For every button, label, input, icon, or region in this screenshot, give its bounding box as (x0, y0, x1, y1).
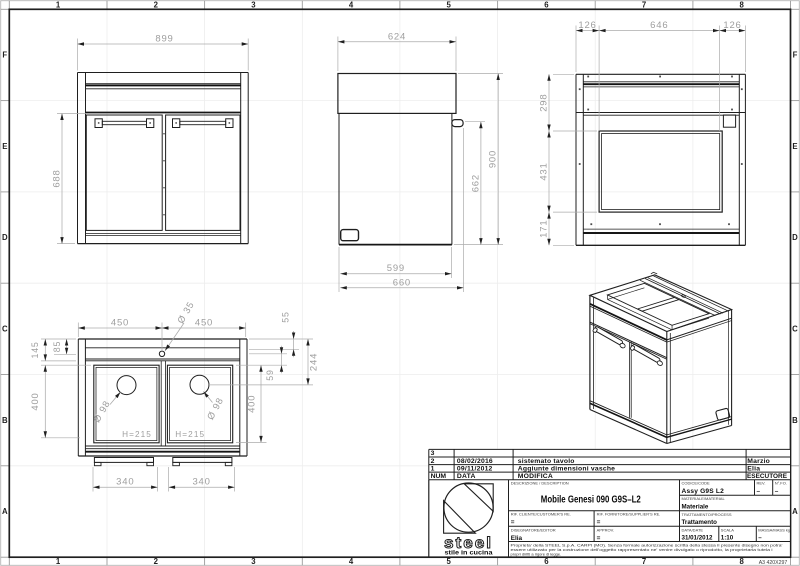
svg-text:H=215: H=215 (175, 430, 205, 439)
svg-text:2: 2 (154, 557, 159, 566)
svg-text:F: F (2, 50, 7, 59)
svg-text:propri diritti a rigore di leg: propri diritti a rigore di legge. (511, 552, 562, 557)
svg-text:400: 400 (30, 392, 41, 410)
svg-text:F: F (793, 50, 798, 59)
svg-text:Trattamento: Trattamento (682, 519, 718, 526)
svg-text:SCALA: SCALA (721, 527, 734, 532)
svg-text:A: A (2, 507, 8, 516)
svg-text:599: 599 (387, 263, 405, 274)
svg-text:646: 646 (650, 20, 668, 31)
svg-text:1:10: 1:10 (721, 535, 734, 542)
svg-text:RIF. CLIENTE/CUSTOMER'S RE.: RIF. CLIENTE/CUSTOMER'S RE. (511, 512, 571, 517)
svg-text:340: 340 (116, 477, 134, 488)
svg-text:340: 340 (192, 477, 210, 488)
svg-text:900: 900 (488, 150, 499, 168)
svg-text:4: 4 (349, 557, 354, 566)
svg-text:D: D (792, 233, 798, 242)
svg-text:C: C (792, 324, 798, 333)
svg-text:sistemato tavolo: sistemato tavolo (518, 458, 575, 465)
svg-text:=: = (597, 519, 601, 526)
svg-text:31/01/2012: 31/01/2012 (682, 535, 714, 542)
svg-text:6: 6 (544, 0, 549, 9)
svg-text:Elia: Elia (747, 465, 760, 472)
svg-text:59: 59 (265, 369, 275, 380)
svg-text:stile in cucina: stile in cucina (445, 550, 494, 557)
svg-text:08/02/2016: 08/02/2016 (457, 458, 493, 465)
svg-text:N°.FO.: N°.FO. (775, 481, 787, 486)
svg-text:E: E (792, 142, 797, 151)
svg-text:3: 3 (251, 0, 256, 9)
svg-text:688: 688 (52, 169, 63, 187)
svg-text:MATERIALE/MATERIAL: MATERIALE/MATERIAL (682, 496, 726, 501)
svg-text:DATA/DATE: DATA/DATE (682, 527, 704, 532)
svg-text:899: 899 (155, 34, 173, 45)
svg-text:431: 431 (539, 162, 550, 180)
svg-text:85: 85 (52, 341, 62, 352)
svg-text:RIF. FORNITORE/SUPPLIER'S RE.: RIF. FORNITORE/SUPPLIER'S RE. (597, 512, 661, 517)
svg-text:400: 400 (246, 395, 257, 413)
svg-text:=: = (511, 519, 515, 526)
svg-text:55: 55 (281, 311, 291, 322)
svg-text:3: 3 (431, 450, 435, 457)
svg-text:–: – (775, 488, 779, 495)
svg-text:450: 450 (111, 318, 129, 329)
svg-text:8: 8 (740, 557, 745, 566)
svg-text:Assy G9S L2: Assy G9S L2 (682, 488, 725, 495)
svg-text:624: 624 (388, 31, 406, 42)
svg-text:APPROV.: APPROV. (597, 527, 614, 532)
svg-text:450: 450 (195, 318, 213, 329)
svg-text:DESCRIZIONE / DESCRIPTION: DESCRIZIONE / DESCRIPTION (511, 481, 569, 486)
svg-text:7: 7 (642, 557, 646, 566)
svg-text:6: 6 (544, 557, 549, 566)
svg-text:4: 4 (349, 0, 354, 9)
svg-text:Elia: Elia (511, 535, 523, 542)
svg-text:–: – (757, 488, 761, 495)
svg-text:A3 420X297: A3 420X297 (759, 560, 788, 566)
svg-text:1: 1 (56, 557, 61, 566)
svg-text:Materiale: Materiale (682, 503, 709, 510)
svg-text:Aggiunte dimensioni vasche: Aggiunte dimensioni vasche (518, 465, 615, 472)
svg-text:1: 1 (431, 465, 435, 472)
svg-text:09/11/2012: 09/11/2012 (457, 465, 493, 472)
svg-text:5: 5 (447, 557, 452, 566)
svg-text:660: 660 (393, 277, 411, 288)
svg-text:D: D (2, 233, 8, 242)
svg-text:–: – (758, 535, 762, 542)
svg-text:REV.: REV. (757, 481, 766, 486)
svg-text:8: 8 (740, 0, 745, 9)
svg-text:Marzio: Marzio (747, 458, 770, 465)
svg-text:E: E (2, 142, 7, 151)
svg-text:Mobile Genesi 090 G9S–L2: Mobile Genesi 090 G9S–L2 (541, 494, 641, 505)
svg-text:=: = (597, 535, 601, 542)
svg-text:DATA: DATA (457, 473, 476, 480)
svg-text:ESECUTORE: ESECUTORE (747, 473, 787, 480)
svg-text:126: 126 (578, 20, 596, 31)
svg-text:145: 145 (30, 341, 40, 358)
svg-text:C: C (2, 324, 8, 333)
svg-text:TRATTAMENTO/PROCESS: TRATTAMENTO/PROCESS (682, 512, 732, 517)
svg-text:2: 2 (154, 0, 159, 9)
svg-text:2: 2 (431, 458, 435, 465)
svg-text:7: 7 (642, 0, 646, 9)
svg-text:B: B (792, 416, 798, 425)
svg-text:MASSA/MASS kg: MASSA/MASS kg (758, 527, 790, 532)
svg-text:662: 662 (470, 174, 481, 192)
svg-text:A: A (792, 507, 798, 516)
svg-text:244: 244 (309, 353, 320, 371)
svg-text:NUM: NUM (431, 473, 447, 480)
svg-text:B: B (2, 416, 8, 425)
svg-text:5: 5 (447, 0, 452, 9)
svg-text:298: 298 (539, 94, 550, 112)
svg-text:CODICE/CODE: CODICE/CODE (682, 481, 711, 486)
svg-text:171: 171 (539, 220, 550, 238)
svg-text:DISEGNATORE/EDITOR: DISEGNATORE/EDITOR (511, 527, 556, 532)
svg-text:1: 1 (56, 0, 61, 9)
svg-text:MODIFICA: MODIFICA (518, 473, 553, 480)
svg-text:3: 3 (251, 557, 256, 566)
svg-text:126: 126 (723, 20, 741, 31)
svg-text:H=215: H=215 (122, 430, 152, 439)
